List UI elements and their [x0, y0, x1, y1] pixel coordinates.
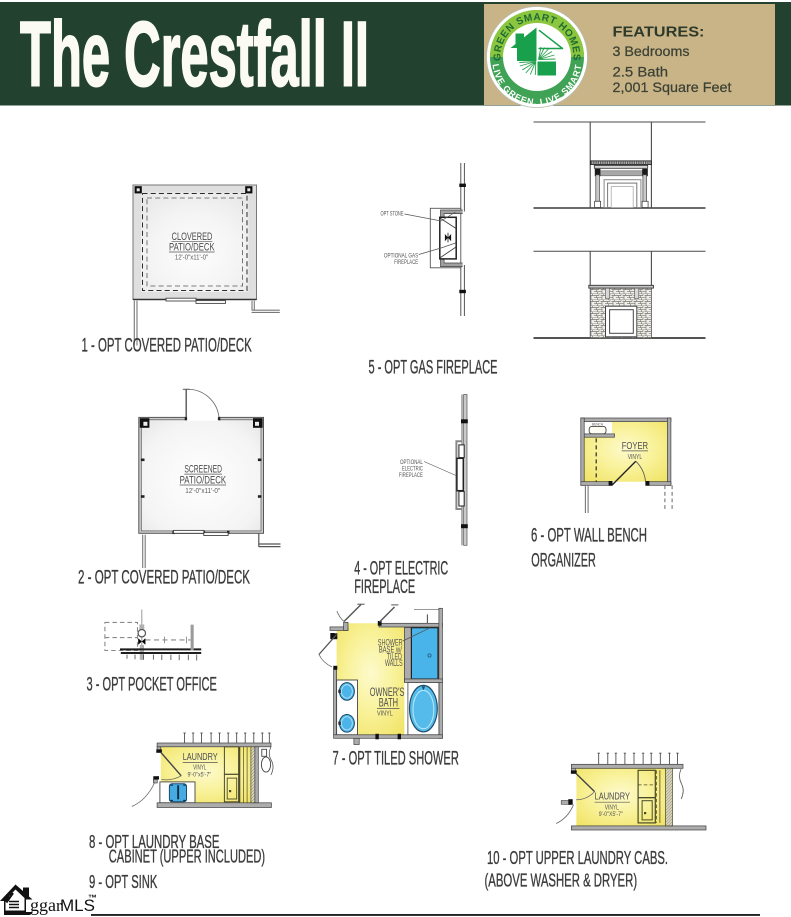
svg-text:9 - OPT SINK: 9 - OPT SINK: [89, 871, 158, 892]
svg-text:VINYL: VINYL: [377, 708, 393, 717]
svg-text:OPT STONE: OPT STONE: [381, 210, 404, 217]
svg-text:FIREPLACE: FIREPLACE: [394, 259, 418, 266]
svg-text:9'-0"X5'-7": 9'-0"X5'-7": [599, 812, 623, 818]
svg-text:3 - OPT POCKET OFFICE: 3 - OPT POCKET OFFICE: [87, 674, 217, 696]
svg-text:12'-0"x11'-0": 12'-0"x11'-0": [185, 488, 220, 495]
svg-text:6 - OPT WALL BENCH: 6 - OPT WALL BENCH: [531, 525, 647, 547]
svg-text:™: ™: [88, 893, 97, 903]
svg-text:9'-0"x5'-7": 9'-0"x5'-7": [187, 772, 211, 778]
svg-text:VINYL: VINYL: [605, 804, 619, 811]
svg-text:FEATURES:: FEATURES:: [613, 24, 705, 41]
svg-text:2,001 Square Feet: 2,001 Square Feet: [613, 79, 732, 95]
svg-text:VINYL: VINYL: [628, 454, 642, 461]
svg-text:ggar: ggar: [30, 895, 62, 915]
svg-text:2.5 Bath: 2.5 Bath: [613, 64, 669, 80]
svg-text:VINYL: VINYL: [193, 765, 206, 772]
svg-text:LAUNDRY: LAUNDRY: [595, 791, 630, 803]
svg-text:WALLS: WALLS: [385, 658, 403, 669]
svg-text:(ABOVE WASHER & DRYER): (ABOVE WASHER & DRYER): [485, 870, 638, 891]
svg-text:5 - OPT GAS FIREPLACE: 5 - OPT GAS FIREPLACE: [369, 357, 498, 379]
svg-text:10 - OPT UPPER LAUNDRY CABS.: 10 - OPT UPPER LAUNDRY CABS.: [487, 847, 668, 868]
svg-text:ORGANIZER: ORGANIZER: [531, 549, 596, 571]
svg-text:FIREPLACE: FIREPLACE: [354, 576, 415, 598]
svg-text:The Crestfall II: The Crestfall II: [20, 4, 369, 106]
svg-text:12'-0"x11'-0": 12'-0"x11'-0": [175, 254, 209, 261]
svg-text:FOYER: FOYER: [622, 440, 649, 452]
svg-text:LAUNDRY: LAUNDRY: [183, 751, 218, 763]
svg-text:FIREPLACE: FIREPLACE: [399, 472, 423, 479]
svg-text:7 - OPT TILED SHOWER: 7 - OPT TILED SHOWER: [333, 747, 459, 769]
svg-text:2 - OPT COVERED PATIO/DECK: 2 - OPT COVERED PATIO/DECK: [78, 567, 250, 589]
svg-text:3 Bedrooms: 3 Bedrooms: [613, 43, 690, 59]
svg-text:BENCH: BENCH: [592, 423, 604, 427]
svg-text:1 - OPT COVERED PATIO/DECK: 1 - OPT COVERED PATIO/DECK: [82, 335, 252, 357]
svg-text:CABINET (UPPER INCLUDED): CABINET (UPPER INCLUDED): [109, 845, 265, 866]
